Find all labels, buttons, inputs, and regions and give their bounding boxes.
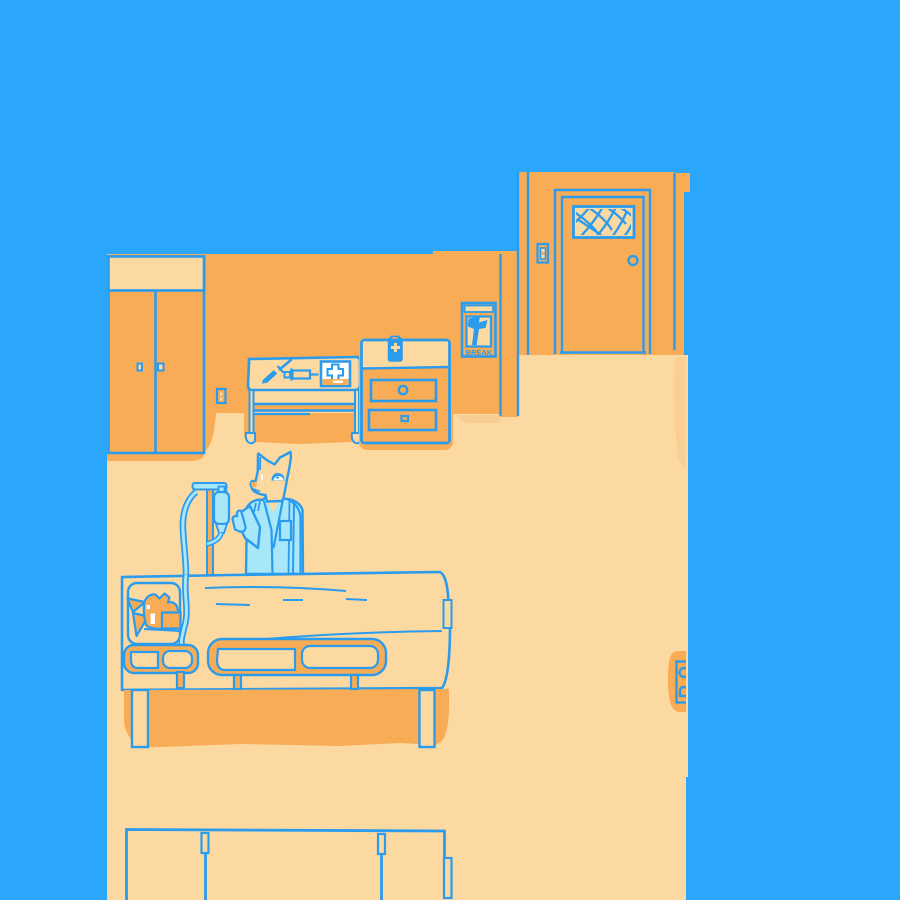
svg-text:BREAK: BREAK xyxy=(466,348,493,357)
